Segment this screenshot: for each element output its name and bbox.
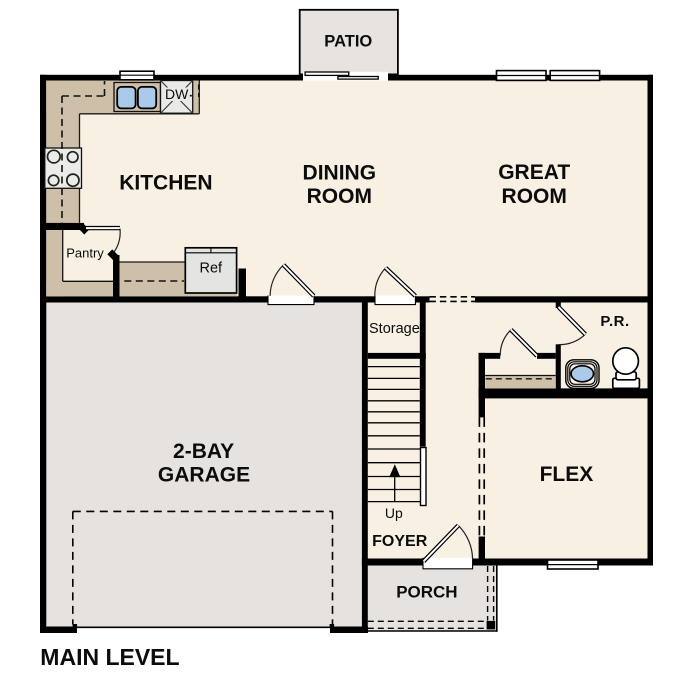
svg-text:MAIN LEVEL: MAIN LEVEL [40, 644, 179, 670]
svg-text:GREAT: GREAT [498, 161, 570, 184]
svg-text:Ref: Ref [200, 261, 224, 277]
svg-text:PATIO: PATIO [324, 33, 372, 51]
svg-text:ROOM: ROOM [502, 185, 567, 208]
svg-text:FLEX: FLEX [540, 463, 594, 486]
svg-text:PORCH: PORCH [396, 583, 457, 602]
svg-text:Pantry: Pantry [66, 245, 104, 260]
svg-text:2-BAY: 2-BAY [173, 440, 234, 463]
svg-text:ROOM: ROOM [307, 185, 372, 208]
svg-text:FOYER: FOYER [372, 533, 428, 550]
svg-text:Storage: Storage [369, 321, 420, 337]
svg-text:DINING: DINING [303, 161, 377, 184]
svg-text:P.R.: P.R. [600, 313, 629, 330]
svg-text:GARAGE: GARAGE [158, 463, 250, 486]
svg-text:Up: Up [385, 505, 403, 521]
svg-text:DW: DW [165, 86, 189, 102]
svg-text:KITCHEN: KITCHEN [119, 172, 212, 195]
